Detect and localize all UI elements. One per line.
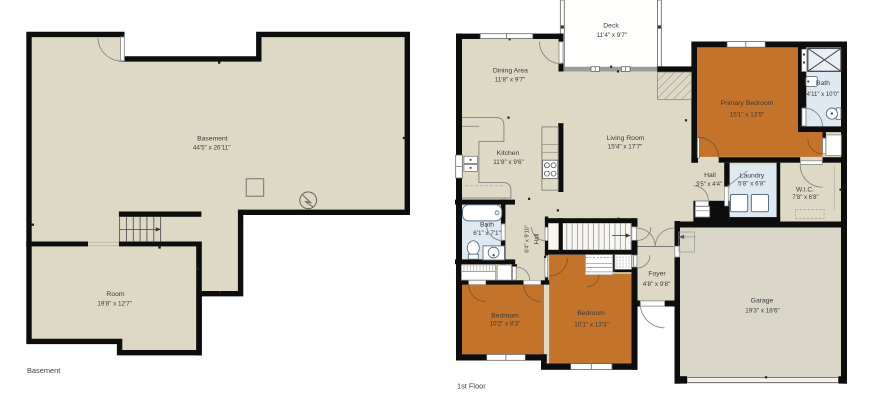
svg-text:Primary Bedroom: Primary Bedroom — [721, 100, 774, 107]
svg-text:11'8" x 9'6": 11'8" x 9'6" — [493, 159, 524, 166]
svg-text:Room: Room — [106, 291, 124, 298]
svg-text:Bath: Bath — [816, 80, 830, 87]
svg-text:4'11" x 10'0": 4'11" x 10'0" — [807, 92, 839, 98]
svg-text:5'8" x 6'8": 5'8" x 6'8" — [738, 181, 766, 188]
svg-text:Hall: Hall — [534, 234, 541, 245]
svg-text:Bedroom: Bedroom — [577, 310, 605, 317]
svg-text:4'8" x 9'8": 4'8" x 9'8" — [643, 281, 671, 288]
svg-text:6'4" x 9'10": 6'4" x 9'10" — [525, 225, 531, 253]
svg-text:19'8" x 12'7": 19'8" x 12'7" — [97, 301, 132, 308]
svg-text:Laundry: Laundry — [740, 172, 765, 179]
svg-text:Deck: Deck — [603, 23, 619, 30]
svg-text:Foyer: Foyer — [648, 271, 666, 278]
svg-text:3'5" x 4'4": 3'5" x 4'4" — [696, 182, 722, 188]
svg-text:7'8" x 6'8": 7'8" x 6'8" — [792, 195, 818, 201]
svg-text:W.I.C.: W.I.C. — [796, 187, 814, 194]
svg-text:10'1" x 13'3": 10'1" x 13'3" — [574, 321, 609, 328]
svg-text:11'8" x 9'7": 11'8" x 9'7" — [495, 76, 526, 83]
svg-text:1st Floor: 1st Floor — [457, 382, 486, 391]
svg-text:Bedroom: Bedroom — [491, 312, 519, 319]
svg-text:11'4" x 9'7": 11'4" x 9'7" — [597, 32, 628, 39]
svg-text:Basement: Basement — [27, 366, 60, 375]
svg-text:19'3" x 18'6": 19'3" x 18'6" — [745, 308, 780, 315]
svg-text:Garage: Garage — [751, 298, 774, 305]
svg-text:Dining Area: Dining Area — [493, 68, 528, 75]
svg-text:Kitchen: Kitchen — [497, 150, 520, 157]
svg-text:Living Room: Living Room — [607, 135, 645, 142]
svg-text:Basement: Basement — [197, 135, 228, 142]
svg-text:Bath: Bath — [480, 221, 494, 228]
svg-text:44'5" x 26'11": 44'5" x 26'11" — [193, 144, 231, 151]
svg-text:15'4" x 17'7": 15'4" x 17'7" — [608, 143, 643, 150]
svg-text:10'2" x 8'3": 10'2" x 8'3" — [489, 321, 520, 328]
svg-text:6'1" x 7'1": 6'1" x 7'1" — [473, 230, 501, 237]
svg-text:Hall: Hall — [704, 172, 716, 179]
svg-text:15'1" x 13'5": 15'1" x 13'5" — [730, 112, 765, 119]
